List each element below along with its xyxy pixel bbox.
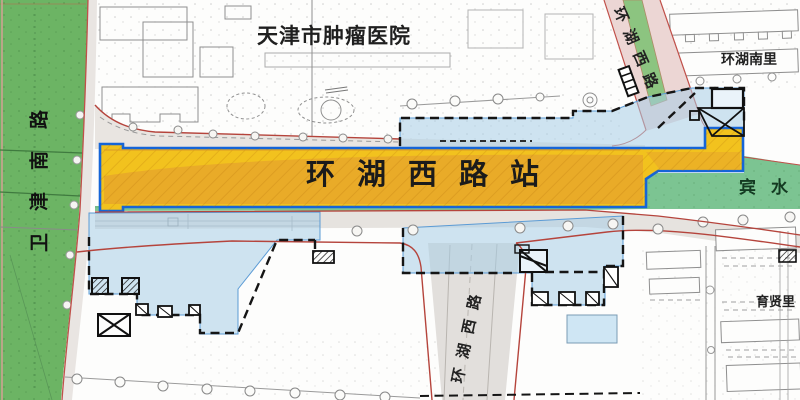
yuxianli-label: 育贤里: [756, 295, 795, 308]
huanhu-nanli-label: 环湖南里: [721, 52, 777, 66]
vent-shaft: [779, 250, 796, 262]
hospital-label: 天津市肿瘤医院: [257, 26, 411, 47]
vent-shaft: [313, 251, 334, 263]
vent-shaft: [122, 278, 139, 294]
station-label: 环湖西路站: [306, 161, 561, 190]
map-drawing: [0, 0, 800, 400]
station-plan-map: 天津市肿瘤医院 环湖西路站 卫津南路 环湖西路 环湖西路 环湖南里 宾水 育贤里: [0, 0, 800, 400]
vent-shaft: [92, 278, 108, 294]
binshui-label: 宾水: [739, 179, 800, 196]
road-label-weijin-south: 卫津南路: [31, 88, 50, 252]
escalator-structure: [515, 245, 547, 272]
reserved-parcel: [567, 315, 617, 343]
